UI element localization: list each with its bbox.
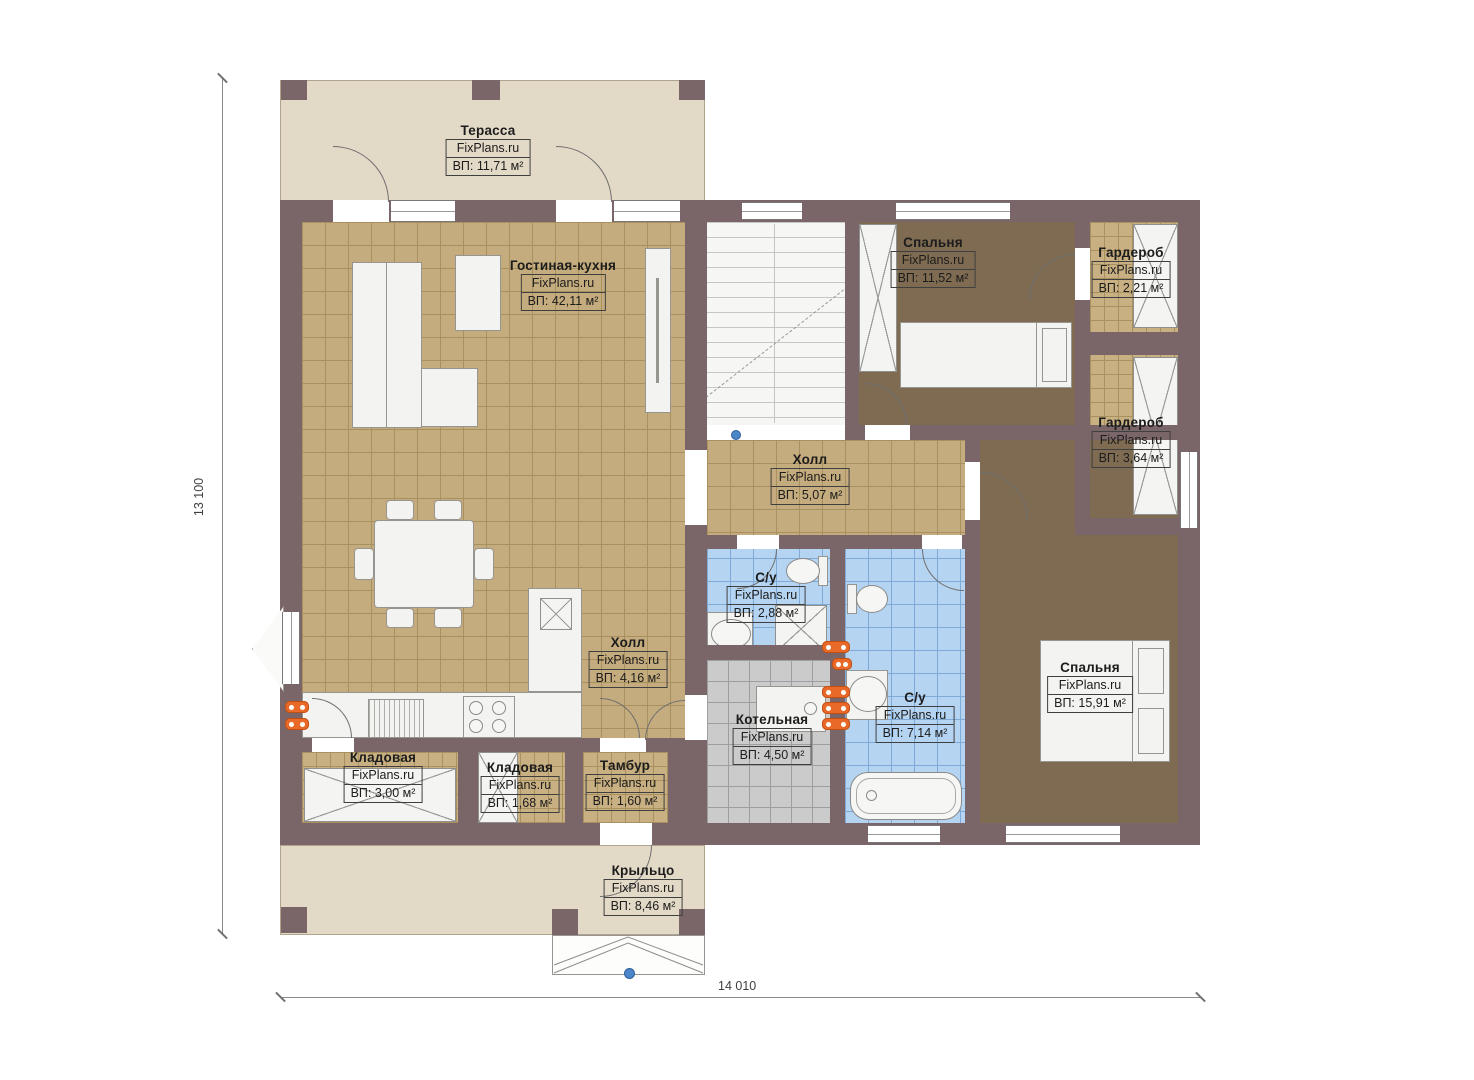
room-name: Кладовая [344, 750, 423, 765]
sofa-vertical [352, 262, 422, 428]
room-area: ВП: 42,11 м² [522, 293, 605, 310]
bed-single-pillow [1042, 328, 1067, 382]
bed-double-pillow-2 [1138, 708, 1164, 754]
radiator-5 [822, 686, 850, 698]
room-name: Крыльцо [604, 863, 683, 878]
bedroom-1-door-opening [865, 425, 910, 440]
terrace-door-2-opening [556, 200, 612, 222]
site-watermark: FixPlans.ru [892, 252, 975, 270]
site-watermark: FixPlans.ru [587, 775, 664, 793]
porch-pillar-mid [552, 909, 578, 935]
sofa-back-line [386, 263, 387, 427]
dimension-line-horizontal [280, 997, 1200, 998]
porch-pillar-right [679, 909, 705, 935]
room-label-vestibule: Тамбур FixPlans.ru ВП: 1,60 м² [586, 758, 665, 811]
staircase [707, 222, 845, 425]
bay-window-projection [252, 606, 284, 692]
room-label-wardrobe-1: Гардероб FixPlans.ru ВП: 2,21 м² [1092, 245, 1171, 298]
staircase-center-line [774, 224, 775, 423]
wall-bath1-boiler [707, 645, 830, 660]
floor-plan: Терасса FixPlans.ru ВП: 11,71 м² Гостина… [0, 0, 1474, 1080]
site-watermark: FixPlans.ru [345, 767, 422, 785]
radiator-1 [285, 701, 309, 713]
dining-chair-4 [434, 608, 462, 628]
room-name: Спальня [891, 235, 976, 250]
vestibule-hall-door-opening [600, 738, 646, 752]
bathtub-inner [856, 778, 956, 814]
bath-2-window-bottom [868, 825, 940, 843]
radiator-3 [822, 641, 850, 653]
room-name: Холл [771, 452, 850, 467]
kitchen-sink [540, 598, 572, 630]
radiator-2 [285, 718, 309, 730]
bath-2-door-opening [922, 535, 962, 549]
radiator-4 [832, 658, 852, 670]
room-label-storage-2: Кладовая FixPlans.ru ВП: 1,68 м² [481, 760, 560, 813]
room-area: ВП: 2,88 м² [728, 605, 805, 622]
terrace-pillar-left [281, 80, 307, 100]
room-name: Гостиная-кухня [510, 258, 616, 273]
room-name: Спальня [1047, 660, 1133, 675]
room-area: ВП: 11,71 м² [447, 158, 530, 175]
wall-storage-divider-2 [565, 752, 583, 823]
room-area: ВП: 15,91 м² [1048, 695, 1132, 712]
room-label-storage-1: Кладовая FixPlans.ru ВП: 3,00 м² [344, 750, 423, 803]
site-watermark: FixPlans.ru [728, 587, 805, 605]
room-area: ВП: 7,14 м² [877, 725, 954, 742]
dimension-line-vertical [222, 78, 223, 935]
room-name: Тамбур [586, 758, 665, 773]
tv-screen [656, 278, 659, 383]
site-watermark: FixPlans.ru [605, 880, 682, 898]
site-watermark: FixPlans.ru [1048, 677, 1132, 695]
site-watermark: FixPlans.ru [734, 729, 811, 747]
burner-4 [492, 719, 506, 733]
room-name: С/у [876, 690, 955, 705]
room-area: ВП: 1,60 м² [587, 793, 664, 810]
bath-2-toilet [856, 585, 888, 613]
room-label-bedroom-1: Спальня FixPlans.ru ВП: 11,52 м² [891, 235, 976, 288]
dimension-horizontal-value: 14 010 [718, 979, 756, 993]
room-label-bedroom-2: Спальня FixPlans.ru ВП: 15,91 м² [1047, 660, 1133, 713]
front-door-opening [600, 823, 652, 845]
living-bay-window [282, 612, 300, 684]
room-area: ВП: 5,07 м² [772, 487, 849, 504]
room-label-bath-1: С/у FixPlans.ru ВП: 2,88 м² [727, 570, 806, 623]
room-area: ВП: 3,64 м² [1093, 450, 1170, 467]
room-area: ВП: 4,50 м² [734, 747, 811, 764]
living-window-1 [391, 200, 455, 222]
radiator-6 [822, 702, 850, 714]
hall-living-opening [685, 450, 707, 525]
site-watermark: FixPlans.ru [447, 140, 530, 158]
room-name: Кладовая [481, 760, 560, 775]
site-watermark: FixPlans.ru [1093, 262, 1170, 280]
room-label-hall-2: Холл FixPlans.ru ВП: 4,16 м² [589, 635, 668, 688]
room-label-bath-2: С/у FixPlans.ru ВП: 7,14 м² [876, 690, 955, 743]
room-label-terrace: Терасса FixPlans.ru ВП: 11,71 м² [446, 123, 531, 176]
room-area: ВП: 11,52 м² [892, 270, 975, 287]
room-area: ВП: 3,00 м² [345, 785, 422, 802]
dining-chair-1 [386, 500, 414, 520]
room-name: С/у [727, 570, 806, 585]
wardrobe-2-window-right [1180, 452, 1198, 528]
room-name: Терасса [446, 123, 531, 138]
staircase-marker-dot [731, 430, 741, 440]
room-area: ВП: 8,46 м² [605, 898, 682, 915]
room-label-boiler: Котельная FixPlans.ru ВП: 4,50 м² [733, 712, 812, 765]
room-label-wardrobe-2: Гардероб FixPlans.ru ВП: 3,64 м² [1092, 415, 1171, 468]
room-name: Холл [589, 635, 668, 650]
dining-chair-3 [386, 608, 414, 628]
wall-wardrobe-divider [1090, 332, 1178, 355]
wall-vestibule-right [668, 752, 685, 823]
room-area: ВП: 4,16 м² [590, 670, 667, 687]
coffee-table [455, 255, 501, 331]
room-area: ВП: 1,68 м² [482, 795, 559, 812]
bedroom-2-window-bottom [1006, 825, 1120, 843]
terrace-pillar-mid [472, 80, 500, 100]
dining-chair-2 [434, 500, 462, 520]
radiator-7 [822, 718, 850, 730]
site-watermark: FixPlans.ru [877, 707, 954, 725]
room-label-living: Гостиная-кухня FixPlans.ru ВП: 42,11 м² [510, 258, 616, 311]
bedroom-2-door-opening [965, 462, 980, 520]
wall-stair-bedroom [845, 222, 859, 425]
room-label-hall-1: Холл FixPlans.ru ВП: 5,07 м² [771, 452, 850, 505]
fridge [368, 699, 424, 738]
wall-storage-divider-1 [458, 752, 478, 823]
site-watermark: FixPlans.ru [1093, 432, 1170, 450]
bed-double-pillow-1 [1138, 648, 1164, 694]
dimension-vertical-value: 13 100 [192, 478, 206, 516]
wall-wardrobe2-bottom [1075, 518, 1178, 535]
room-label-porch: Крыльцо FixPlans.ru ВП: 8,46 м² [604, 863, 683, 916]
terrace-pillar-right [679, 80, 705, 100]
terrace-door-1-opening [333, 200, 389, 222]
site-watermark: FixPlans.ru [590, 652, 667, 670]
sofa-chaise [421, 368, 478, 427]
dining-chair-6 [474, 548, 494, 580]
burner-2 [492, 701, 506, 715]
bath-1-door-opening [737, 535, 779, 549]
site-watermark: FixPlans.ru [522, 275, 605, 293]
bedroom-1-window-top [896, 202, 1010, 220]
site-watermark: FixPlans.ru [772, 469, 849, 487]
porch-pillar-left [281, 907, 307, 933]
room-name: Котельная [733, 712, 812, 727]
room-name: Гардероб [1092, 415, 1171, 430]
stairs-window-top [742, 202, 802, 220]
porch-marker-dot [624, 968, 635, 979]
bed-single-blanket-line [1036, 323, 1037, 387]
living-window-2 [614, 200, 680, 222]
boiler-door-opening [685, 695, 707, 740]
wall-bath-divider [830, 535, 845, 823]
room-area: ВП: 2,21 м² [1093, 280, 1170, 297]
burner-3 [469, 719, 483, 733]
dining-table [374, 520, 474, 608]
wardrobe-1-door-opening [1075, 248, 1090, 300]
wall-left [280, 200, 302, 845]
dining-chair-5 [354, 548, 374, 580]
site-watermark: FixPlans.ru [482, 777, 559, 795]
room-name: Гардероб [1092, 245, 1171, 260]
burner-1 [469, 701, 483, 715]
